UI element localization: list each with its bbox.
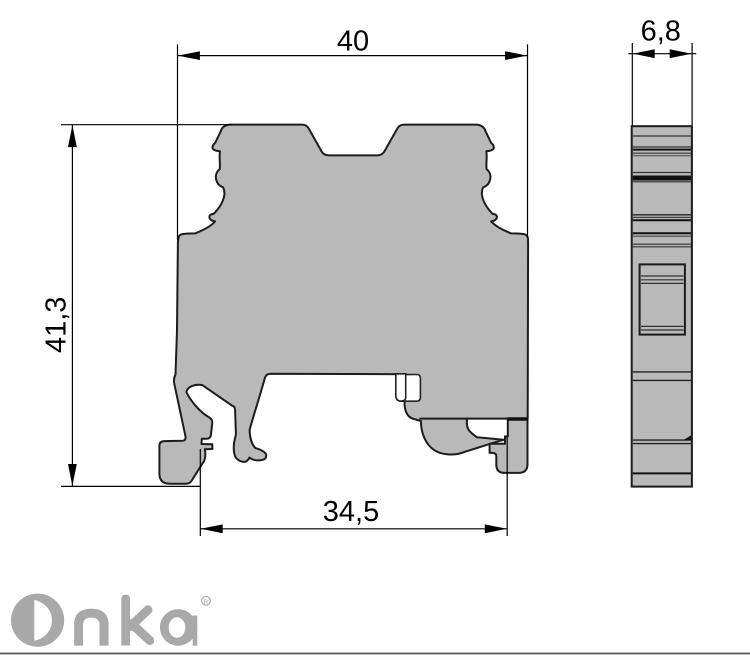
svg-text:6,8: 6,8 <box>641 16 681 48</box>
svg-text:R: R <box>204 599 209 606</box>
svg-text:34,5: 34,5 <box>323 496 379 528</box>
svg-text:40: 40 <box>337 26 369 58</box>
svg-text:41,3: 41,3 <box>40 297 72 353</box>
